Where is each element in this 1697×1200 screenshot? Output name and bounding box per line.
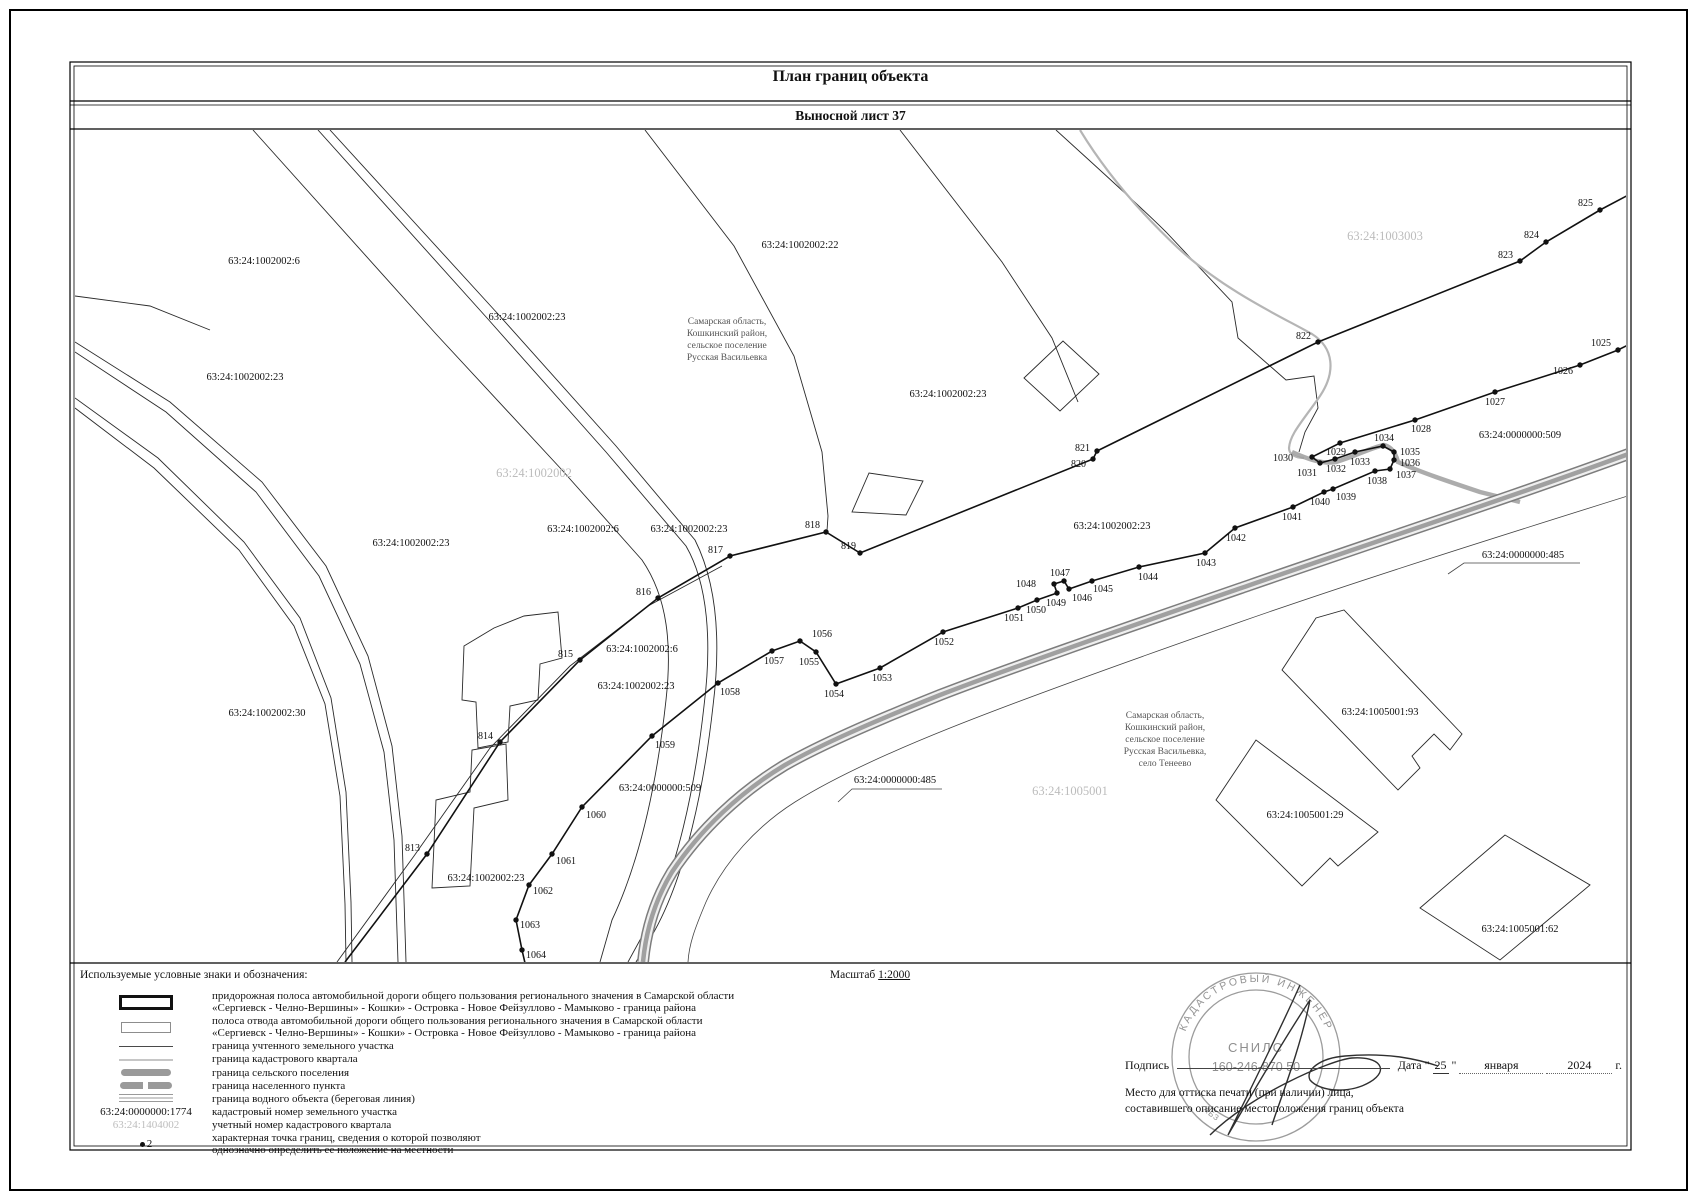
legend-item-rural-settlement: граница сельского поселения [80, 1067, 1010, 1079]
region-note-line: Русская Васильевка [687, 353, 768, 363]
quarter-number-label: 63:24:1002002 [496, 466, 572, 480]
boundary-point-number: 1057 [764, 656, 784, 667]
parcel-cadastral-number: 63:24:1002002:23 [650, 524, 727, 535]
boundary-point-dot [1089, 578, 1094, 583]
boundary-point-dot [649, 733, 654, 738]
parcel-cadastral-number: 63:24:1002002:23 [1073, 521, 1150, 532]
boundary-point-number: 1028 [1411, 424, 1431, 435]
boundary-point-number: 1034 [1374, 433, 1394, 444]
boundary-point-dot [1391, 457, 1396, 462]
boundary-point-dot [1492, 389, 1497, 394]
building-outlines [852, 341, 1099, 515]
parcel-cadastral-number: 63:24:0000000:509 [619, 783, 701, 794]
boundary-point-number: 1033 [1350, 457, 1370, 468]
boundary-point-number: 1047 [1050, 568, 1070, 579]
town-line-symbol [120, 1082, 172, 1089]
boundary-point-number: 821 [1075, 443, 1090, 454]
legend-item-text: однозначно определить ее положение на ме… [212, 1144, 1010, 1156]
boundary-point-dot [1317, 460, 1322, 465]
boundary-point-number: 1053 [872, 673, 892, 684]
quarter-number-label: 63:24:1003003 [1347, 229, 1423, 243]
boundary-point-number: 1025 [1591, 338, 1611, 349]
region-note-line: село Тенеево [1139, 759, 1192, 769]
legend-item-text: граница населенного пункта [212, 1080, 1010, 1092]
roadside-strip-symbol [119, 995, 173, 1010]
boundary-point-dot [1315, 339, 1320, 344]
map-canvas: 63:24:1002002:663:24:1002002:2263:24:100… [75, 130, 1634, 963]
map-labels: 63:24:1002002:663:24:1002002:2263:24:100… [206, 198, 1620, 961]
boundary-point-number: 824 [1524, 230, 1539, 241]
page-title: План границ объекта [70, 68, 1631, 86]
boundary-point-dot [1232, 525, 1237, 530]
boundary-point-number: 1027 [1485, 397, 1505, 408]
cadastral-quarter-line-symbol [119, 1059, 173, 1061]
boundary-point-dot [1337, 440, 1342, 445]
legend-heading: Используемые условные знаки и обозначени… [80, 969, 1010, 981]
date-month: января [1459, 1058, 1543, 1074]
quarter-number-label: 63:24:1005001 [1032, 784, 1108, 798]
boundary-point-number: 1056 [812, 629, 832, 640]
boundary-point-number: 1051 [1004, 613, 1024, 624]
boundary-point-dot [1615, 347, 1620, 352]
legend-item-text: граница кадастрового квартала [212, 1053, 1010, 1065]
legend-item-cadastral-quarter: граница кадастрового квартала [80, 1053, 1010, 1065]
boundary-point-dot [513, 917, 518, 922]
legend-item-text: граница учтенного земельного участка [212, 1040, 1010, 1052]
legend-item-text: характерная точка границ, сведения о кот… [212, 1132, 1010, 1144]
legend-item-text: «Сергиевск - Челно-Вершины» - Кошки» - О… [212, 1002, 1010, 1014]
boundary-point-dot [1517, 258, 1522, 263]
boundary-point-dot [1309, 454, 1314, 459]
parcel-cadastral-number: 63:24:1002002:6 [228, 256, 300, 267]
boundary-point-number: 816 [636, 587, 651, 598]
boundary-point-dot [1391, 449, 1396, 454]
parcel-cadastral-number: 63:24:1002002:23 [909, 389, 986, 400]
legend: Используемые условные знаки и обозначени… [80, 969, 1010, 1157]
boundary-point-dot [833, 681, 838, 686]
boundary-point-dot [1054, 590, 1059, 595]
boundary-point-dot [577, 657, 582, 662]
boundary-point-dot [1051, 581, 1056, 586]
boundary-point-number: 1060 [586, 810, 606, 821]
date-label: Дата [1398, 1058, 1422, 1073]
boundary-point-number: 1058 [720, 687, 740, 698]
boundary-point-number: 1063 [520, 920, 540, 931]
parcel-cadastral-number: 63:24:1002002:23 [597, 681, 674, 692]
boundary-point-dot [1034, 597, 1039, 602]
boundary-point-number: 1064 [526, 950, 546, 961]
seal-place-note: Место для оттиска печати (при наличии) л… [1125, 1086, 1404, 1117]
boundary-point-number: 820 [1071, 459, 1086, 470]
parcel-outlines-right [1216, 610, 1590, 960]
point-dot-symbol [140, 1142, 145, 1147]
signature-row: Подпись Дата " 25 " января 2024 г. [1125, 1056, 1622, 1074]
date-suffix: г. [1615, 1058, 1622, 1073]
boundary-point-number: 1059 [655, 740, 675, 751]
boundary-point-dot [1015, 605, 1020, 610]
date-year: 2024 [1546, 1058, 1612, 1074]
cadastral-quarter-line [1080, 130, 1330, 458]
boundary-point-dot [549, 851, 554, 856]
boundary-point-number: 1044 [1138, 572, 1158, 583]
parcel-cadastral-number: 63:24:1005001:29 [1266, 810, 1343, 821]
registered-parcel-line-symbol [119, 1046, 173, 1047]
sheet-subtitle: Выносной лист 37 [70, 108, 1631, 124]
boundary-point-number: 1030 [1273, 453, 1293, 464]
parcel-cadastral-number: 63:24:1002002:23 [447, 873, 524, 884]
parcel-cadastral-number: 63:24:1005001:62 [1481, 924, 1558, 935]
region-note-line: сельское поселение [1125, 735, 1204, 745]
boundary-point-dot [1597, 207, 1602, 212]
seal-place-note-line: Место для оттиска печати (при наличии) л… [1125, 1086, 1404, 1102]
boundary-point-number: 825 [1578, 198, 1593, 209]
signature-label: Подпись [1125, 1058, 1169, 1073]
boundary-point-dot [1094, 448, 1099, 453]
boundary-point-number: 814 [478, 731, 493, 742]
parcel-cadastral-number: 63:24:1002002:30 [228, 708, 305, 719]
boundary-point-number: 1042 [1226, 533, 1246, 544]
legend-item-town: граница населенного пункта [80, 1080, 1010, 1092]
date-quote-close: " [1452, 1058, 1457, 1073]
boundary-point-number: 1048 [1016, 579, 1036, 590]
region-note-line: Самарская область, [688, 316, 767, 327]
parcel-cadastral-number: 63:24:0000000:485 [1482, 550, 1564, 561]
boundary-point-dot [727, 553, 732, 558]
parcel-cadastral-number: 63:24:1002002:23 [206, 372, 283, 383]
parcel-cadastral-number: 63:24:1002002:6 [606, 644, 678, 655]
boundary-point-dot [526, 882, 531, 887]
region-note-line: сельское поселение [687, 341, 766, 351]
boundary-point-number: 1045 [1093, 584, 1113, 595]
boundary-point-number: 1040 [1310, 497, 1330, 508]
boundary-chains [345, 192, 1634, 963]
boundary-point-dot [1543, 239, 1548, 244]
boundary-point-dot [877, 665, 882, 670]
region-note-line: Кошкинский район, [1125, 722, 1205, 733]
boundary-point-number: 1046 [1072, 593, 1092, 604]
boundary-point-dot [940, 629, 945, 634]
boundary-point-dot [1321, 489, 1326, 494]
boundary-point-dot [1352, 449, 1357, 454]
boundary-point-dot [797, 638, 802, 643]
boundary-point-number: 1036 [1400, 458, 1420, 469]
date-day: 25 [1433, 1058, 1449, 1074]
boundary-point-number: 1062 [533, 886, 553, 897]
parcel-cadastral-number: 63:24:1002002:23 [488, 312, 565, 323]
legend-item-roadside-strip: придорожная полоса автомобильной дороги … [80, 990, 1010, 1014]
boundary-point-dot [1066, 586, 1071, 591]
boundary-point-dot [1577, 362, 1582, 367]
boundary-point-number: 815 [558, 649, 573, 660]
boundary-point-number: 823 [1498, 250, 1513, 261]
stepped-parcel-outlines [432, 612, 562, 888]
region-note-line: Самарская область, [1126, 710, 1205, 721]
boundary-point-number: 817 [708, 545, 723, 556]
boundary-point-dot [1412, 417, 1417, 422]
point-number-example: 2 [147, 1138, 153, 1150]
seal-place-note-line: составившего описание местоположения гра… [1125, 1102, 1404, 1118]
boundary-point-number: 1054 [824, 689, 844, 700]
boundary-point-dot [1330, 486, 1335, 491]
boundary-point-number: 1049 [1046, 598, 1066, 609]
boundary-point-dot [424, 851, 429, 856]
boundary-point-number: 1031 [1297, 468, 1317, 479]
legend-item-text: придорожная полоса автомобильной дороги … [212, 990, 1010, 1002]
boundary-point-number: 1029 [1326, 447, 1346, 458]
boundary-point-dot [1090, 456, 1095, 461]
boundary-point-number: 1035 [1400, 447, 1420, 458]
rural-settlement-line-symbol [121, 1069, 171, 1076]
boundary-point-number: 1026 [1553, 366, 1573, 377]
stamp-snils-label: СНИЛС [1228, 1040, 1284, 1055]
quarter-number-example: 63:24:1404002 [113, 1119, 180, 1131]
road-corridor-lines [253, 130, 828, 962]
legend-item-text: «Сергиевск - Челно-Вершины» - Кошки» - О… [212, 1027, 1010, 1039]
boundary-point-dot [1290, 504, 1295, 509]
parcel-cadastral-number: 63:24:0000000:485 [854, 775, 936, 786]
boundary-point-number: 1052 [934, 637, 954, 648]
legend-item-characteristic-point: 2 характерная точка границ, сведения о к… [80, 1132, 1010, 1156]
date-quote-open: " [1425, 1058, 1430, 1073]
allotment-strip-symbol [121, 1022, 171, 1033]
boundary-point-dot [1202, 550, 1207, 555]
boundary-point-number: 1032 [1326, 464, 1346, 475]
parcel-cadastral-number: 63:24:1002002:22 [761, 240, 838, 251]
legend-item-parcel-number: 63:24:0000000:1774 кадастровый номер зем… [80, 1106, 1010, 1118]
boundary-point-number: 1038 [1367, 476, 1387, 487]
legend-item-registered-parcel: граница учтенного земельного участка [80, 1040, 1010, 1052]
legend-item-text: кадастровый номер земельного участка [212, 1106, 1010, 1118]
boundary-point-dot [519, 947, 524, 952]
boundary-point-number: 819 [841, 541, 856, 552]
water-line-symbol [119, 1094, 173, 1104]
parcel-cadastral-number: 63:24:1002002:23 [372, 538, 449, 549]
legend-item-text: полоса отвода автомобильной дороги общег… [212, 1015, 1010, 1027]
upper-parcel-lines [900, 130, 1318, 452]
parcel-cadastral-number: 63:24:1002002:6 [547, 524, 619, 535]
boundary-point-dot [1380, 443, 1385, 448]
boundary-point-dot [1387, 466, 1392, 471]
boundary-point-number: 822 [1296, 331, 1311, 342]
boundary-point-number: 1041 [1282, 512, 1302, 523]
boundary-point-dot [857, 550, 862, 555]
region-note-line: Кошкинский район, [687, 328, 767, 339]
boundary-point-number: 818 [805, 520, 820, 531]
left-parcel-lines [75, 296, 406, 962]
boundary-point-number: 813 [405, 843, 420, 854]
boundary-point-dot [769, 648, 774, 653]
legend-item-water-object: граница водного объекта (береговая линия… [80, 1093, 1010, 1105]
legend-item-quarter-number: 63:24:1404002 учетный номер кадастрового… [80, 1119, 1010, 1131]
parcel-cadastral-number: 63:24:1005001:93 [1341, 707, 1418, 718]
region-note-line: Русская Васильевка, [1124, 747, 1207, 757]
boundary-point-dot [579, 804, 584, 809]
boundary-point-dot [497, 739, 502, 744]
boundary-point-number: 1043 [1196, 558, 1216, 569]
boundary-point-number: 1055 [799, 657, 819, 668]
boundary-point-dot [655, 595, 660, 600]
boundary-point-dot [823, 529, 828, 534]
stamp-ring-text: КАДАСТРОВЫЙ ИНЖЕНЕР [1177, 972, 1335, 1033]
boundary-point-dot [1372, 468, 1377, 473]
cadastral-plan-sheet: 63:24:1002002:663:24:1002002:2263:24:100… [0, 0, 1697, 1200]
boundary-point-number: 1050 [1026, 605, 1046, 616]
boundary-point-number: 1061 [556, 856, 576, 867]
legend-item-text: учетный номер кадастрового квартала [212, 1119, 1010, 1131]
boundary-point-number: 1039 [1336, 492, 1356, 503]
boundary-point-dot [1061, 578, 1066, 583]
parcel-number-example: 63:24:0000000:1774 [100, 1106, 192, 1118]
boundary-point-dot [1136, 564, 1141, 569]
boundary-point-dot [715, 680, 720, 685]
boundary-point-number: 1037 [1396, 470, 1416, 481]
signature-line [1177, 1056, 1390, 1069]
parcel-cadastral-number: 63:24:0000000:509 [1479, 430, 1561, 441]
legend-item-text: граница сельского поселения [212, 1067, 1010, 1079]
legend-item-allotment-strip: полоса отвода автомобильной дороги общег… [80, 1015, 1010, 1039]
legend-item-text: граница водного объекта (береговая линия… [212, 1093, 1010, 1105]
boundary-point-dot [813, 649, 818, 654]
boundary-point-dot [1332, 456, 1337, 461]
